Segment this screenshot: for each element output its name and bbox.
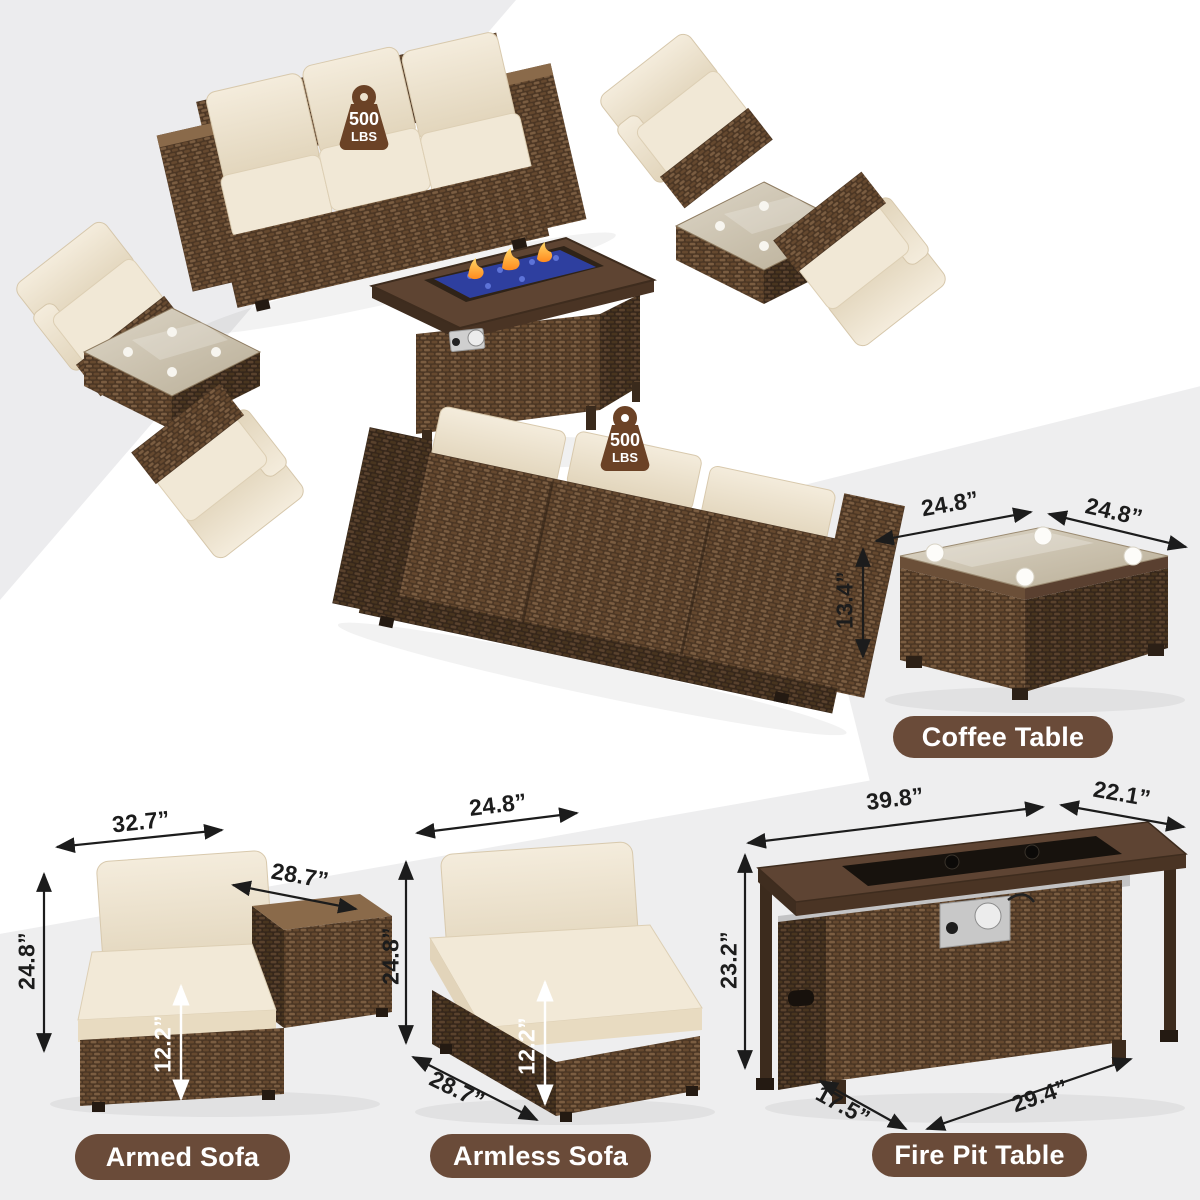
- product-infographic: 500 LBS: [0, 0, 1200, 1200]
- fire-pit-table-name-pill: Fire Pit Table: [872, 1133, 1087, 1177]
- coffee-table-diagram-illustration: [885, 527, 1185, 713]
- scene-illustration: 500 LBS: [0, 0, 1200, 1200]
- weight-value: 500: [610, 430, 640, 450]
- armed-sofa-height-label: 24.8”: [14, 932, 41, 990]
- weight-capacity-badge: 500 LBS: [601, 410, 650, 471]
- fire-pit-height-label: 23.2”: [716, 931, 743, 989]
- armed-sofa-seat-height-label: 12.2”: [150, 1015, 177, 1073]
- armed-sofa-name-pill: Armed Sofa: [75, 1134, 290, 1180]
- corner-chair-set-right-illustration: [594, 29, 953, 351]
- weight-unit: LBS: [351, 129, 377, 144]
- coffee-table-name-pill: Coffee Table: [893, 716, 1113, 758]
- coffee-table-height-label: 13.4”: [832, 571, 859, 629]
- weight-value: 500: [349, 109, 379, 129]
- armless-sofa-name-pill: Armless Sofa: [430, 1134, 651, 1178]
- armed-sofa-diagram-illustration: [50, 850, 392, 1117]
- fire-pit-table-diagram-illustration: [756, 822, 1186, 1123]
- armless-sofa-height-label: 24.8”: [378, 927, 405, 985]
- armless-sofa-seat-height-label: 12.2”: [514, 1017, 541, 1075]
- weight-unit: LBS: [612, 450, 638, 465]
